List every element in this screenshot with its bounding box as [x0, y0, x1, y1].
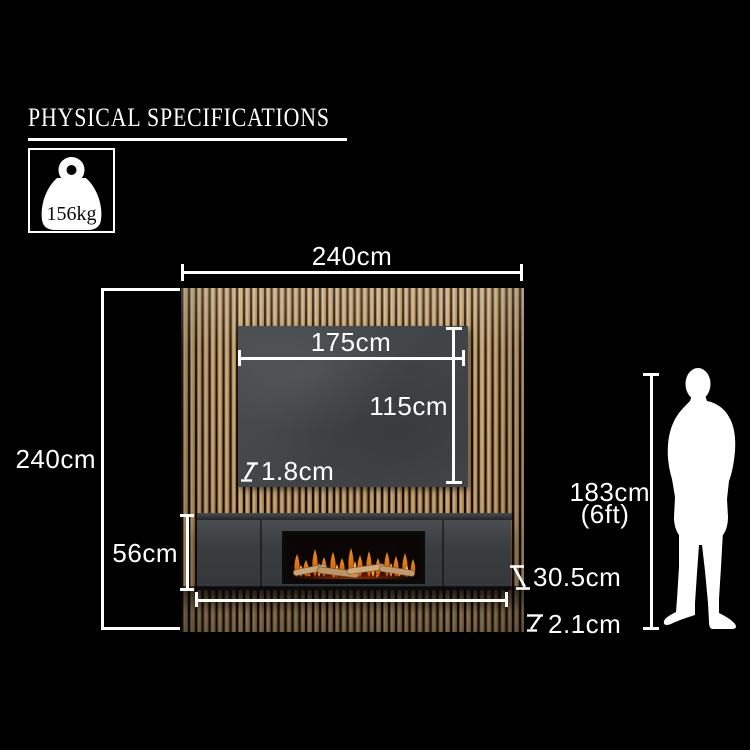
total-width-label: 240cm [281, 243, 423, 269]
suite-height-tick-top [180, 514, 194, 517]
total-width-line [181, 271, 523, 274]
panel-width-tick-left [238, 350, 241, 366]
panel-height-tick-top [446, 327, 462, 330]
page-title: PHYSICAL SPECIFICATIONS [28, 103, 330, 133]
base-thickness-label: 2.1cm [548, 611, 621, 637]
total-width-tick-left [181, 264, 184, 281]
person-height-line [650, 373, 653, 630]
total-height-tick-bottom [101, 627, 180, 630]
suite-height-label: 56cm [103, 540, 178, 566]
panel-width-tick-right [462, 350, 465, 366]
physical-specifications-diagram: PHYSICAL SPECIFICATIONS 156kg [0, 0, 750, 750]
panel-thickness-label: 1.8cm [261, 458, 334, 484]
base-thickness-tick [526, 614, 546, 633]
panel-height-tick-bottom [446, 481, 462, 484]
total-height-tick-top [101, 288, 180, 291]
total-height-label: 240cm [8, 446, 96, 472]
suite-depth-label: 30.5cm [533, 564, 621, 590]
person-height-ft-label: (6ft) [560, 501, 650, 527]
total-width-tick-right [520, 264, 523, 281]
weight-icon: 156kg [30, 150, 113, 231]
suite-height-tick-bottom [180, 588, 194, 591]
total-height-line [101, 288, 104, 630]
suite-depth-tick [509, 565, 531, 590]
panel-thickness-tick [240, 462, 260, 482]
weight-badge: 156kg [28, 148, 115, 233]
fire-flames-icon [287, 536, 420, 579]
suite-seam-left [260, 520, 262, 590]
person-silhouette [659, 367, 743, 631]
suite-width-tick-left [195, 592, 198, 607]
panel-width-line [238, 357, 465, 360]
panel-height-line [452, 327, 455, 484]
panel-width-label: 175cm [280, 329, 422, 355]
title-underline [28, 138, 347, 141]
electric-fire-insert [282, 531, 425, 584]
fireplace-shelf [197, 513, 512, 520]
suite-seam-right [442, 520, 444, 590]
person-height-tick-bottom [643, 627, 659, 630]
suite-height-line [186, 514, 189, 591]
suite-width-tick-right [505, 592, 508, 607]
suite-drop-shadow [181, 586, 524, 632]
person-height-tick-top [643, 373, 659, 376]
panel-height-label: 115cm [358, 393, 448, 419]
weight-value: 156kg [47, 203, 97, 225]
suite-width-line [195, 599, 508, 602]
